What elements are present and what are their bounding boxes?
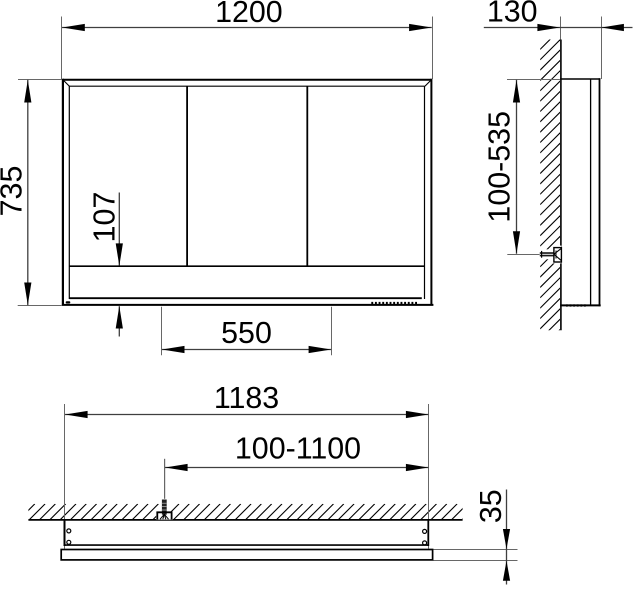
svg-text:130: 130: [487, 0, 538, 29]
svg-text:107: 107: [88, 192, 122, 243]
svg-text:100-1100: 100-1100: [235, 432, 361, 466]
svg-text:35: 35: [474, 489, 508, 523]
svg-text:550: 550: [221, 316, 272, 350]
svg-text:1200: 1200: [215, 0, 283, 29]
svg-text:735: 735: [0, 166, 28, 217]
svg-text:100-535: 100-535: [483, 111, 517, 223]
svg-text:1183: 1183: [214, 381, 279, 415]
